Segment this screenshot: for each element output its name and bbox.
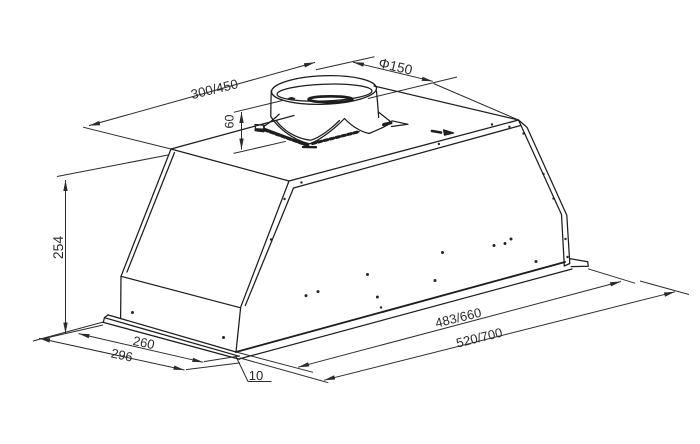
svg-text:260: 260: [132, 333, 156, 352]
svg-text:254: 254: [50, 236, 66, 260]
svg-text:296: 296: [110, 346, 134, 365]
svg-text:520/700: 520/700: [455, 325, 504, 351]
svg-text:10: 10: [249, 368, 263, 383]
svg-text:300/450: 300/450: [189, 76, 239, 102]
svg-text:60: 60: [223, 115, 237, 129]
svg-text:Φ150: Φ150: [377, 55, 414, 77]
svg-text:483/660: 483/660: [434, 305, 483, 331]
